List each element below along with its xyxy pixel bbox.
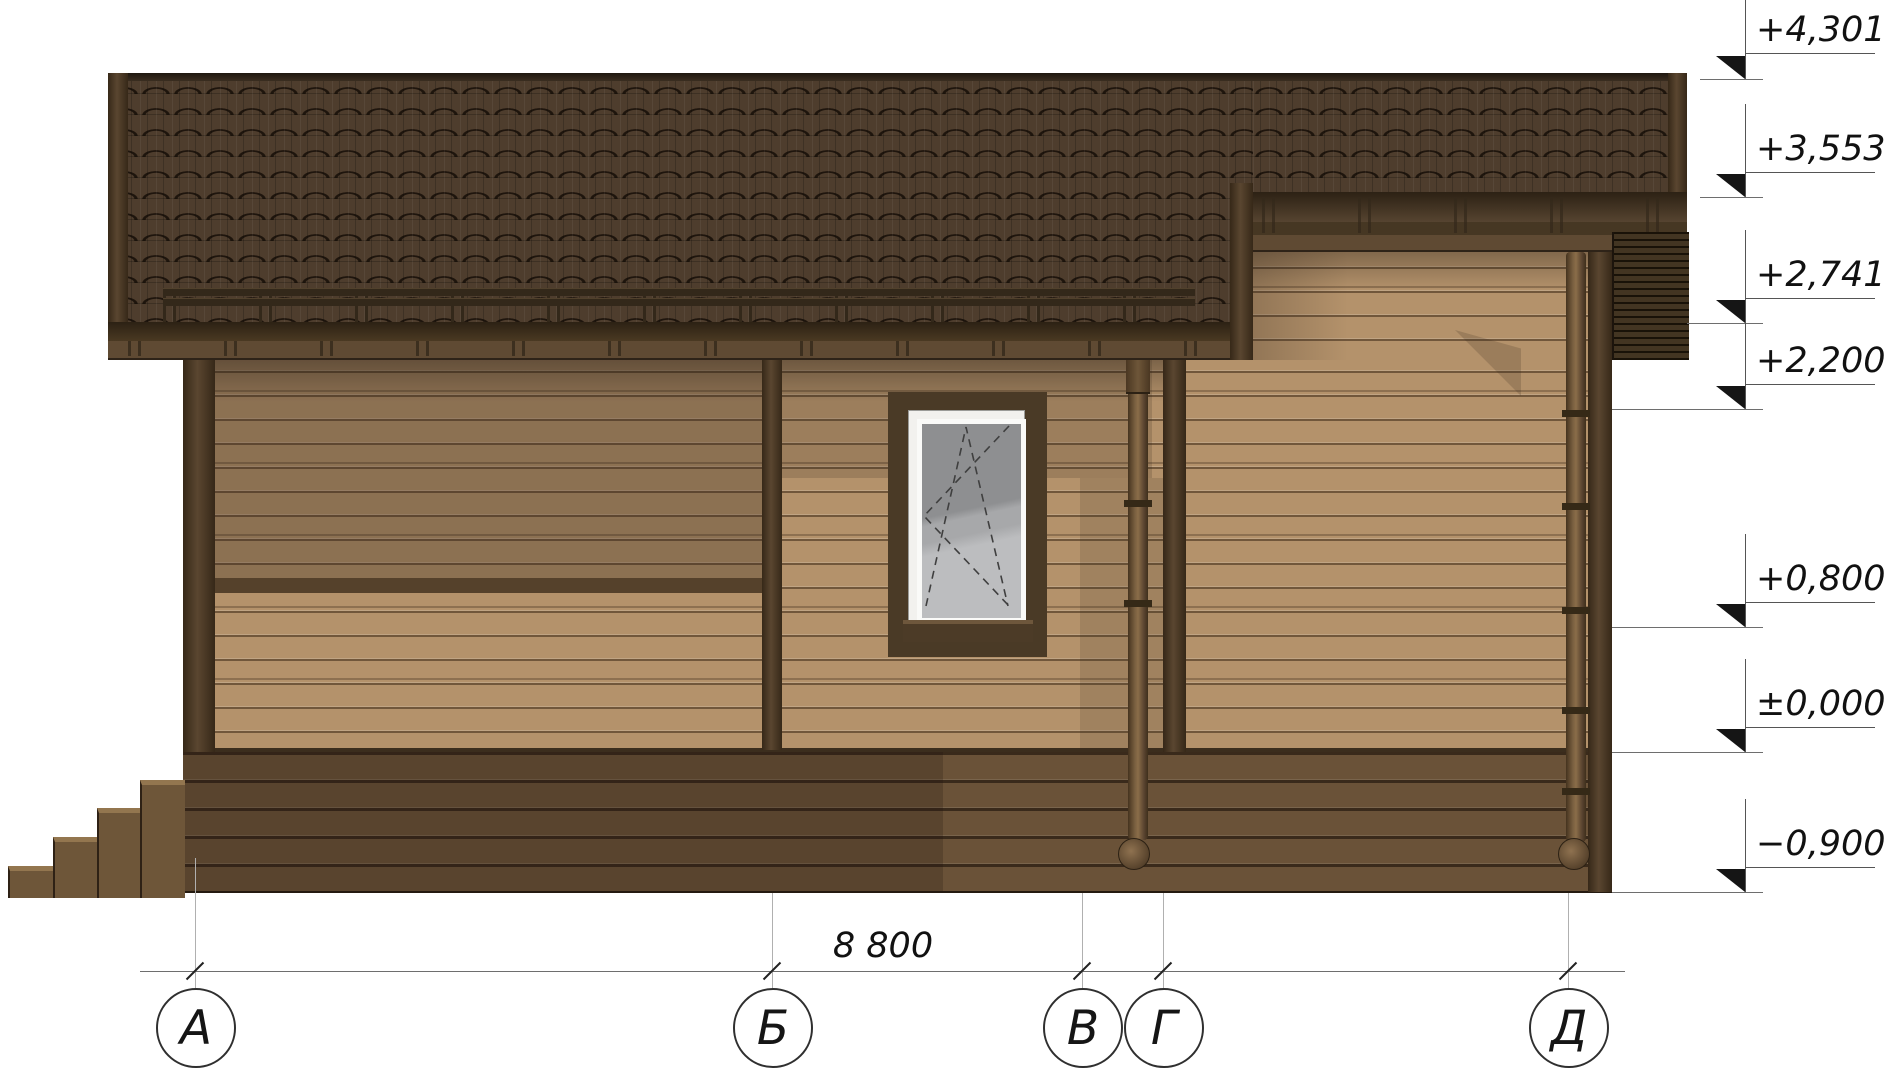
elevation-underline: [1745, 602, 1875, 603]
elevation-drawing: 8 800 А Б В Г Д +4,301 +3,553 +2,741: [0, 0, 1893, 1080]
main-wall-left-corner-board: [183, 358, 215, 752]
window-opening-symbol-icon: [922, 424, 1011, 608]
ground-line: [8, 891, 1612, 893]
axis-bubble-b: Б: [733, 988, 813, 1068]
elevation-leader: [1745, 316, 1746, 409]
elevation-underline: [1745, 53, 1875, 54]
grid-line-v: [1082, 893, 1083, 988]
axis-label: Г: [1151, 1001, 1177, 1056]
snow-guard-rail-top: [163, 288, 1195, 296]
window-glass: [917, 419, 1026, 623]
elevation-leader: [1745, 0, 1746, 79]
elevation-underline: [1745, 727, 1875, 728]
elevation-underline: [1745, 172, 1875, 173]
axis-bubble-v: В: [1043, 988, 1123, 1068]
roof-ridge: [108, 73, 1687, 81]
wing-soffit-ticks: [1262, 197, 1687, 233]
axis-bubble-d: Д: [1529, 988, 1609, 1068]
wall-post: [762, 358, 782, 750]
downspout-middle-bracket: [1124, 500, 1152, 507]
elevation-underline: [1745, 384, 1875, 385]
elevation-value: +0,800: [1756, 559, 1886, 599]
elevation-value: +2,741: [1756, 255, 1886, 295]
right-wing-lower-wall: [1186, 358, 1588, 752]
roof-rake-right: [1668, 73, 1687, 192]
elevation-level-line: [1612, 752, 1763, 753]
elevation-underline: [1745, 867, 1875, 868]
elevation-level-line: [1612, 892, 1763, 893]
roof-tiles-right: [1253, 73, 1687, 192]
downspout-middle-bracket: [1124, 600, 1152, 607]
downspout-middle: [1128, 358, 1148, 840]
grid-line-b: [772, 893, 773, 988]
axis-label: Б: [757, 1001, 789, 1056]
elevation-level-line: [1700, 79, 1763, 80]
right-wing-upper-wall: [1253, 250, 1588, 360]
elevation-underline: [1745, 298, 1875, 299]
elevation-value: −0,900: [1756, 824, 1886, 864]
snow-guard-rail-bottom: [163, 298, 1195, 306]
window-sill: [903, 620, 1033, 642]
elevation-triangle-icon: [1716, 300, 1745, 323]
elevation-leader: [1745, 230, 1746, 323]
grid-line-g: [1163, 893, 1164, 988]
elevation-leader: [1745, 104, 1746, 197]
axis-label: Д: [1551, 1001, 1588, 1056]
elevation-value: ±0,000: [1756, 684, 1886, 724]
roof-tiles-left: [108, 73, 1253, 322]
downspout-right-bracket: [1562, 707, 1590, 714]
elevation-value: +2,200: [1756, 341, 1886, 381]
dimension-line: [140, 971, 1625, 972]
elevation-leader: [1745, 799, 1746, 892]
dimension-total-label: 8 800: [803, 927, 963, 965]
elevation-triangle-icon: [1716, 729, 1745, 752]
downspout-middle-elbow: [1118, 838, 1150, 870]
elevation-value: +3,553: [1756, 129, 1886, 169]
plinth: [183, 752, 1612, 891]
main-soffit-ticks: [128, 341, 1250, 356]
axis-bubble-g: Г: [1124, 988, 1204, 1068]
downspout-right: [1566, 252, 1586, 842]
elevation-value: +4,301: [1756, 10, 1886, 50]
elevation-leader: [1745, 659, 1746, 752]
downspout-right-elbow: [1558, 838, 1590, 870]
main-fascia: [108, 322, 1253, 341]
downspout-right-bracket: [1562, 788, 1590, 795]
wing-right-corner-board: [1588, 250, 1612, 892]
step-1: [140, 780, 185, 898]
axis-bubble-a: А: [156, 988, 236, 1068]
downspout-middle-collar: [1126, 358, 1150, 394]
axis-label: В: [1067, 1001, 1099, 1056]
elevation-triangle-icon: [1716, 386, 1745, 409]
downspout-right-bracket: [1562, 503, 1590, 510]
axis-label: А: [180, 1001, 212, 1056]
elevation-triangle-icon: [1716, 56, 1745, 79]
gable-louver-panel: [1612, 232, 1689, 360]
elevation-triangle-icon: [1716, 869, 1745, 892]
elevation-level-line: [1612, 627, 1763, 628]
elevation-level-line: [1687, 323, 1763, 324]
roof-rake-left: [108, 73, 128, 322]
elevation-triangle-icon: [1716, 174, 1745, 197]
elevation-level-line: [1612, 409, 1763, 410]
downspout-right-bracket: [1562, 410, 1590, 417]
grid-line-d: [1568, 893, 1569, 988]
elevation-leader: [1745, 534, 1746, 627]
roof-step-corner-trim: [1230, 183, 1253, 360]
elevation-triangle-icon: [1716, 604, 1745, 627]
elevation-level-line: [1700, 197, 1763, 198]
downspout-right-bracket: [1562, 607, 1590, 614]
axis-g-corner-board: [1163, 358, 1186, 752]
